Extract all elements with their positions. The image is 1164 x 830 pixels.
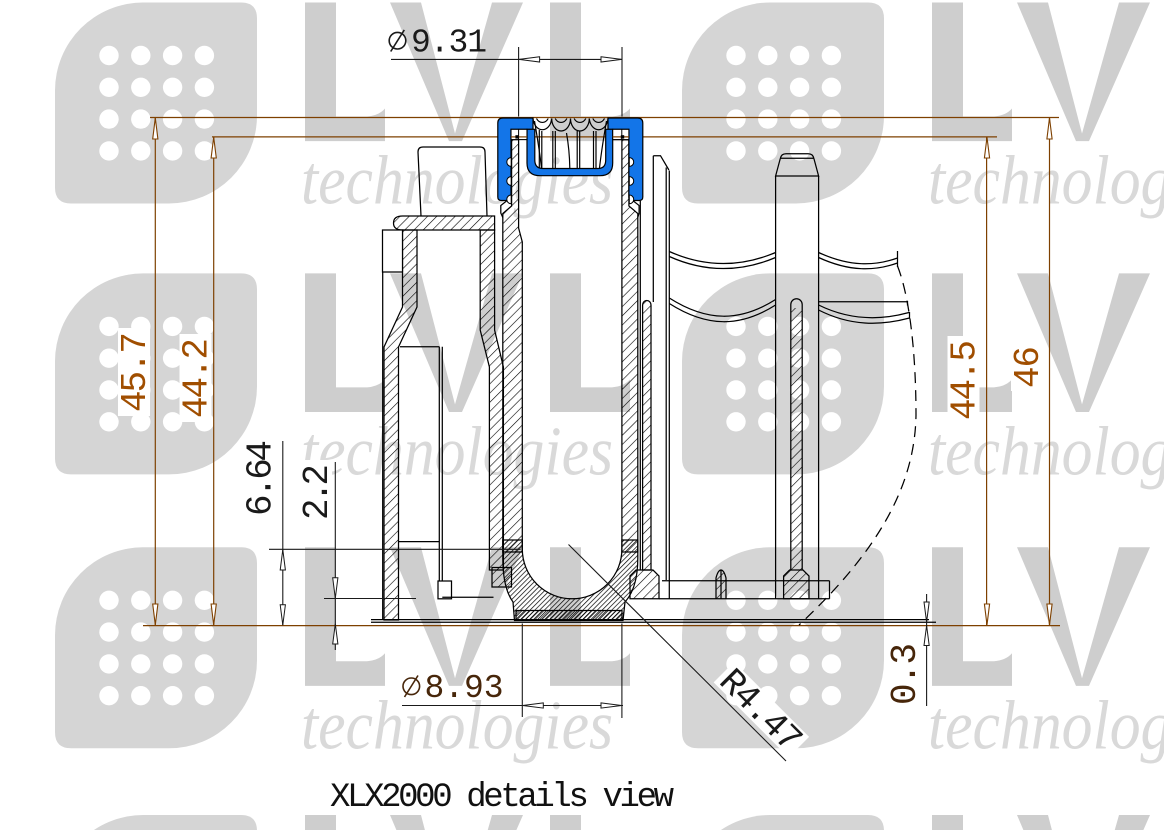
svg-text:46: 46 bbox=[1008, 346, 1049, 388]
svg-text:45.7: 45.7 bbox=[115, 332, 156, 412]
svg-text:2.2: 2.2 bbox=[297, 464, 338, 520]
svg-text:6.64: 6.64 bbox=[241, 440, 282, 516]
svg-text:44.2: 44.2 bbox=[177, 338, 218, 418]
svg-text:0.3: 0.3 bbox=[885, 643, 926, 705]
svg-text:9.31: 9.31 bbox=[411, 25, 487, 62]
svg-text:8.93: 8.93 bbox=[425, 670, 504, 707]
svg-text:XLX2000 details view: XLX2000 details view bbox=[330, 779, 675, 817]
svg-text:44.5: 44.5 bbox=[945, 340, 986, 420]
